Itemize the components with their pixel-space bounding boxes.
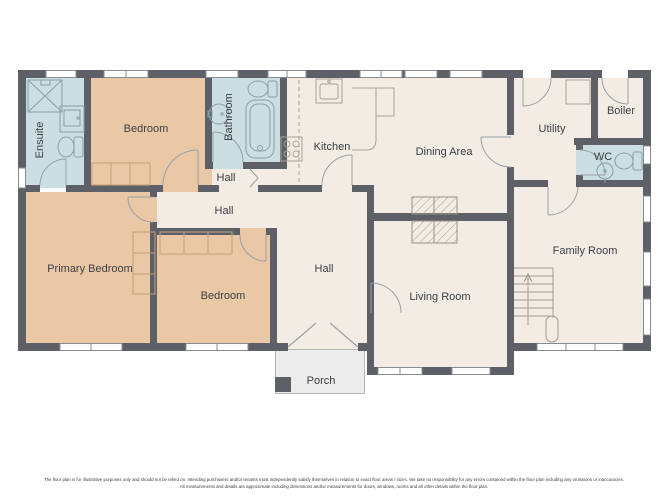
room-bathroom bbox=[205, 78, 287, 169]
porch-pillar bbox=[275, 377, 291, 392]
room-label-living-room: Living Room bbox=[409, 291, 470, 303]
wall bbox=[578, 180, 651, 187]
room-label-family-room: Family Room bbox=[553, 245, 618, 257]
room-label-utility: Utility bbox=[539, 123, 566, 135]
wall bbox=[576, 145, 583, 150]
room-label-boiler: Boiler bbox=[607, 105, 635, 117]
wall bbox=[198, 185, 219, 192]
wall bbox=[367, 367, 514, 375]
wall bbox=[643, 70, 651, 351]
wall bbox=[507, 167, 514, 375]
room-family bbox=[507, 180, 651, 351]
wall bbox=[507, 70, 514, 135]
room-label-wc: WC bbox=[594, 151, 612, 163]
wall bbox=[18, 185, 40, 192]
wall bbox=[591, 78, 598, 138]
wall bbox=[18, 70, 26, 351]
wall bbox=[507, 343, 651, 351]
wall bbox=[258, 185, 322, 192]
wall bbox=[374, 213, 507, 221]
wall bbox=[84, 78, 91, 185]
room-label-bedroom-top: Bedroom bbox=[124, 123, 169, 135]
wall bbox=[150, 192, 157, 197]
room-label-porch: Porch bbox=[307, 375, 336, 387]
wall bbox=[352, 185, 374, 192]
room-label-kitchen: Kitchen bbox=[314, 141, 351, 153]
room-label-hall-lower: Hall bbox=[315, 263, 334, 275]
room-hall-lower bbox=[277, 228, 374, 351]
wall bbox=[270, 228, 277, 343]
wall bbox=[18, 343, 288, 351]
wall bbox=[574, 138, 651, 145]
room-label-bathroom: Bathroom bbox=[223, 93, 235, 141]
wall bbox=[66, 185, 163, 192]
wall bbox=[18, 70, 523, 78]
wall bbox=[157, 228, 240, 235]
wall bbox=[367, 185, 374, 375]
room-label-ensuite: Ensuite bbox=[34, 122, 46, 159]
room-label-bedroom-bottom: Bedroom bbox=[201, 290, 246, 302]
disclaimer-line-2: All measurements and details are approxi… bbox=[0, 483, 668, 490]
wall bbox=[280, 78, 287, 169]
room-label-primary-bedroom: Primary Bedroom bbox=[47, 263, 133, 275]
wall bbox=[205, 78, 212, 169]
wall bbox=[551, 70, 602, 78]
disclaimer: The floor plan is for illustrative purpo… bbox=[0, 476, 668, 490]
wall bbox=[205, 162, 213, 169]
room-label-dining: Dining Area bbox=[416, 146, 473, 158]
room-bedroom-top bbox=[84, 78, 212, 192]
disclaimer-line-1: The floor plan is for illustrative purpo… bbox=[0, 476, 668, 483]
floor-plan: Ensuite Bedroom Bathroom Hall Kitchen Di… bbox=[0, 0, 668, 501]
wall bbox=[150, 222, 157, 343]
room-label-hall-upper: Hall bbox=[215, 205, 234, 217]
wall bbox=[507, 180, 548, 187]
wall bbox=[243, 162, 287, 169]
room-label-hall-small: Hall bbox=[217, 172, 236, 184]
